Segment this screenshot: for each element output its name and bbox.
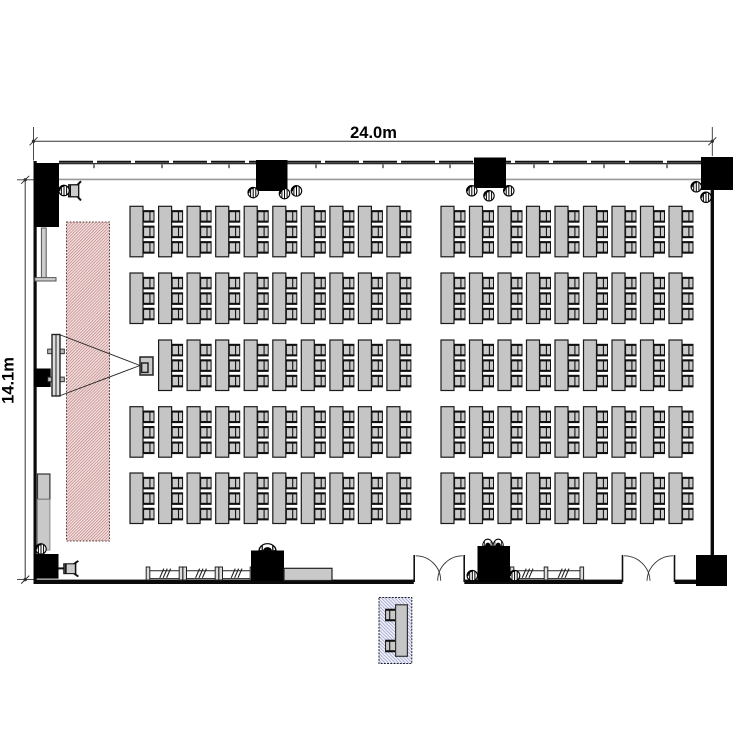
- svg-text:24.0m: 24.0m: [350, 124, 397, 142]
- svg-text:14.1m: 14.1m: [0, 357, 18, 404]
